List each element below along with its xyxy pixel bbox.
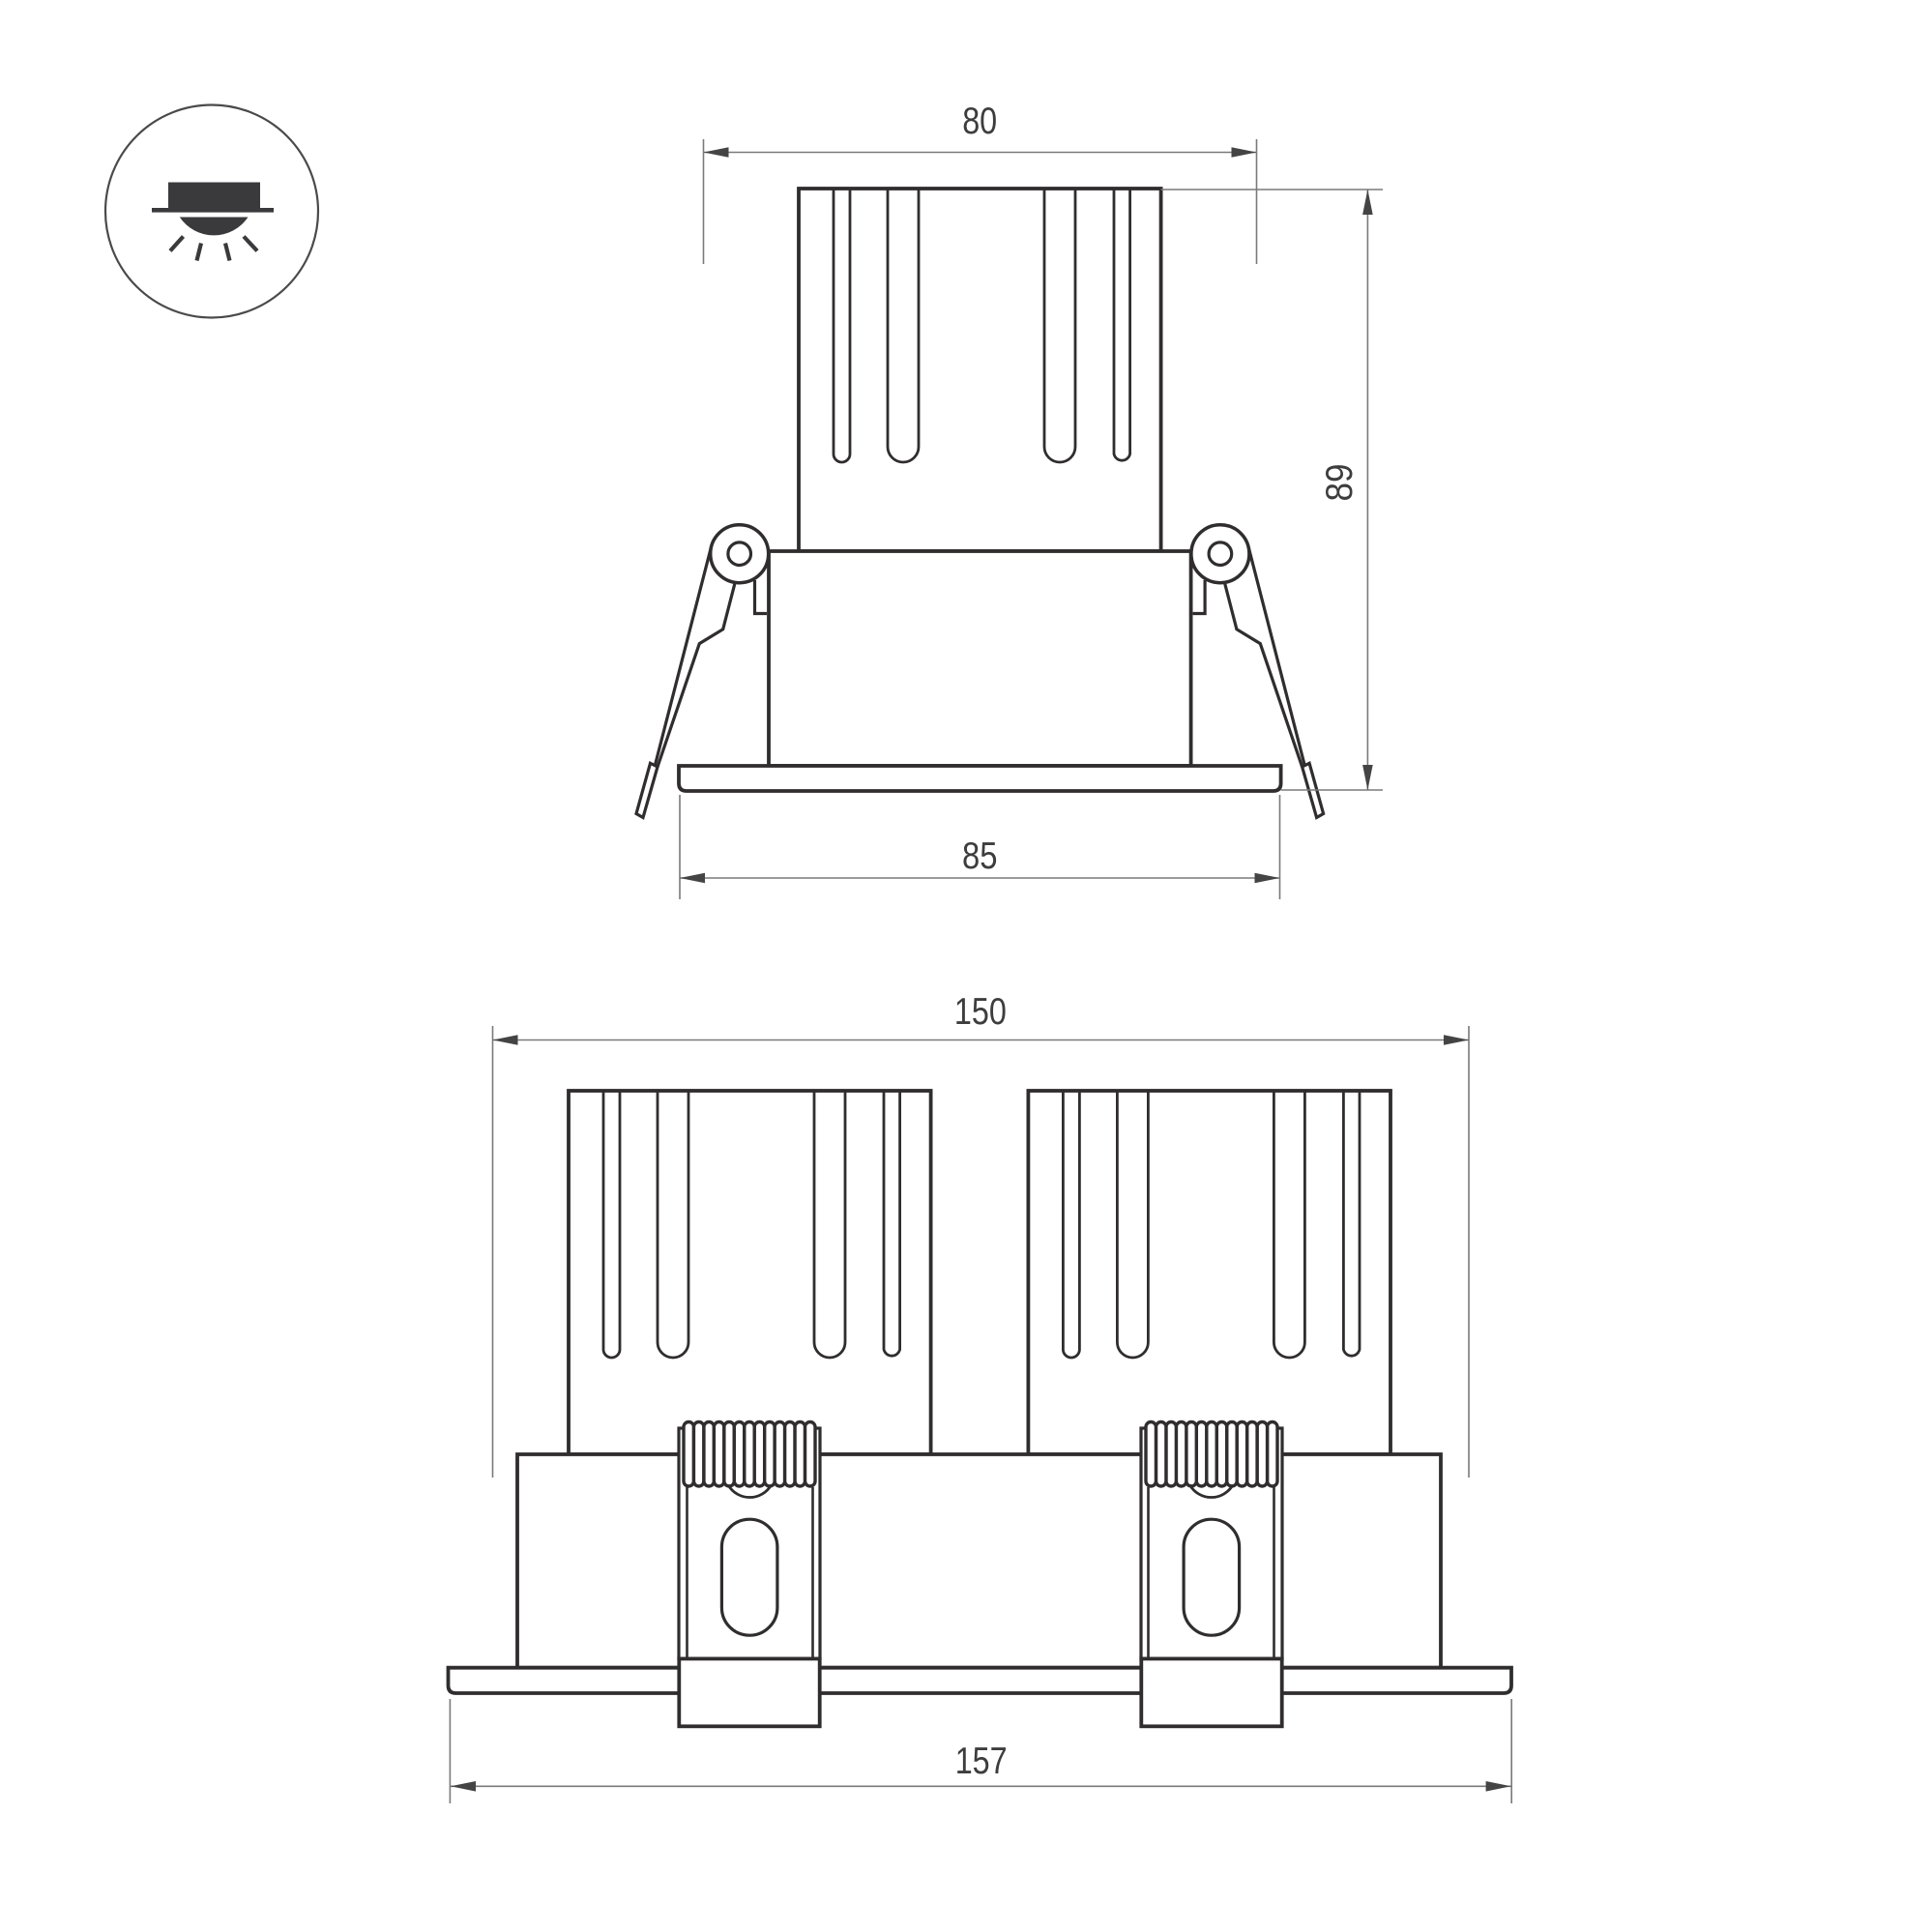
svg-text:85: 85 — [962, 835, 998, 877]
svg-text:80: 80 — [962, 101, 997, 142]
svg-text:150: 150 — [954, 991, 1007, 1033]
svg-text:157: 157 — [955, 1741, 1008, 1782]
svg-text:89: 89 — [1319, 464, 1361, 502]
